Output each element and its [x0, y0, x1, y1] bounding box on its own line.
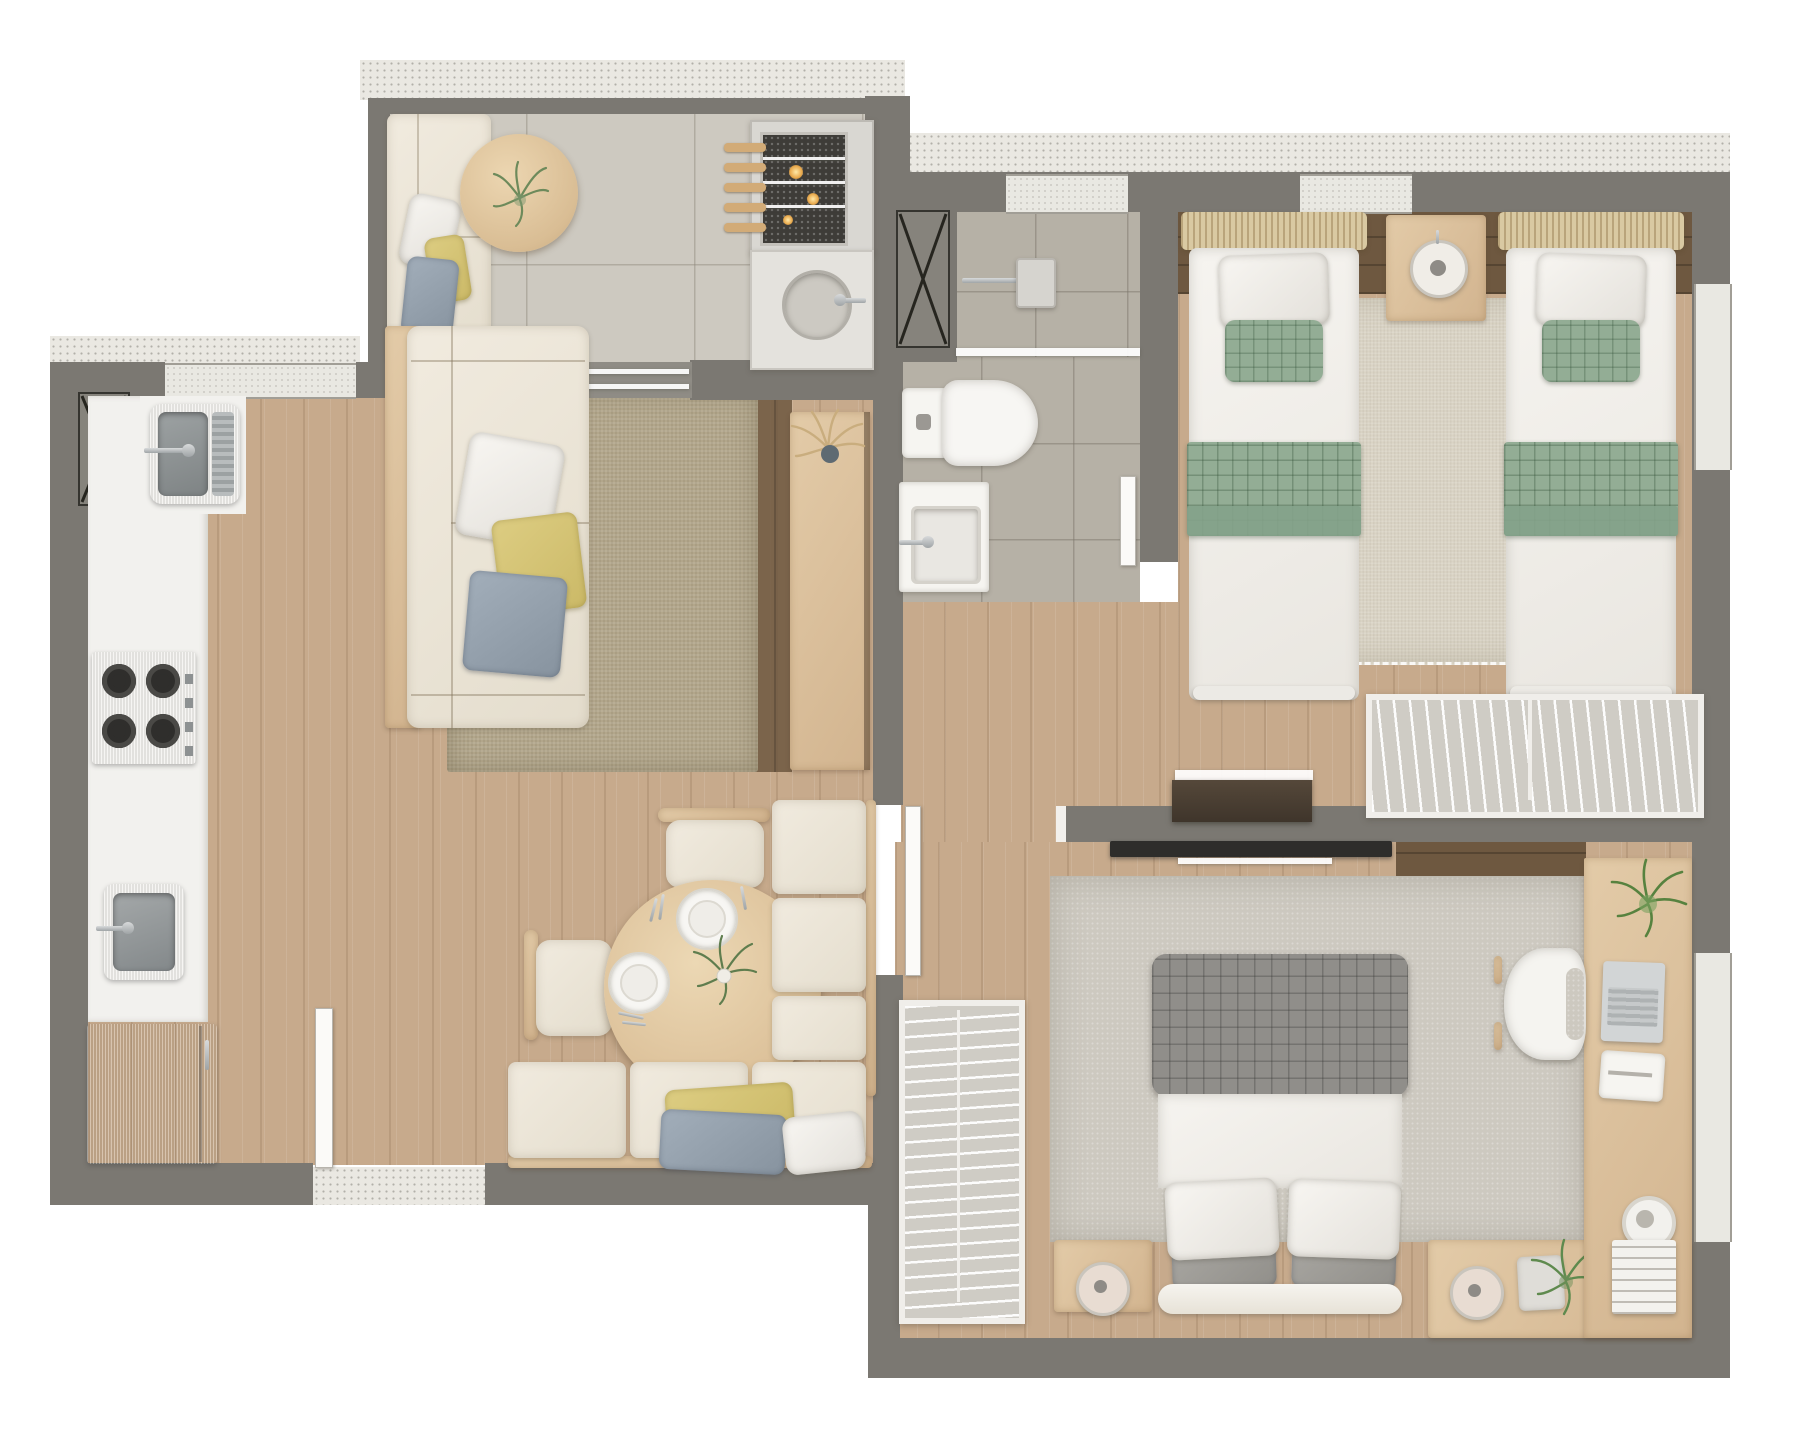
hall-door-leaf [905, 806, 921, 976]
desk-plant-icon [1602, 854, 1694, 946]
twin-bedroom-window-right [1694, 284, 1732, 470]
wall-living-bottom-left [50, 1163, 313, 1205]
refrigerator [87, 1024, 217, 1164]
burner [146, 714, 180, 748]
cooktop-knobs [185, 660, 193, 756]
magazine-spine [1608, 1070, 1652, 1077]
twin-bed1-headboard [1181, 212, 1367, 250]
twin-bed1-blanket-fold [1187, 506, 1361, 536]
banquette-cushion [508, 1062, 626, 1158]
twin-bed1-pillow [1218, 252, 1330, 328]
grill-ember [807, 193, 819, 205]
vase-mouth [1636, 1210, 1654, 1228]
banquette-cushion [772, 898, 866, 992]
master-bed-bolster [1158, 1284, 1402, 1314]
shower-glass [956, 348, 1140, 356]
plate-setting [608, 952, 670, 1014]
kitchen-faucet-base [182, 444, 195, 457]
wall-balcony-top [368, 98, 905, 114]
laptop-keyboard [1607, 987, 1658, 1027]
prep-sink-basin [113, 893, 175, 971]
grill-grate [763, 157, 845, 160]
dining-plant-icon [688, 932, 760, 1010]
desk-chair-opening [1566, 968, 1584, 1040]
desk-chair-leg [1494, 1022, 1502, 1050]
bathroom-door-leaf [1120, 476, 1136, 566]
north-block-sill [865, 133, 1730, 172]
twin-door-leaf [1175, 770, 1313, 780]
grill-skewer [724, 183, 766, 192]
book-stack [1612, 1240, 1676, 1314]
tv-shelf [1178, 858, 1332, 864]
sofa-armrest [411, 328, 585, 362]
wall-master-bottom [868, 1338, 1730, 1378]
banquette-frame [866, 800, 876, 1096]
shower-head [1016, 258, 1056, 308]
master-pillow [1164, 1177, 1280, 1261]
master-pillow [1287, 1178, 1402, 1260]
bathroom-faucet-base [922, 536, 934, 548]
master-bed-sheet [1158, 1094, 1402, 1188]
banquette-cushion [772, 996, 866, 1060]
wardrobe-divider [1528, 700, 1532, 800]
closet-rail [957, 1010, 960, 1302]
laptop [1601, 961, 1666, 1043]
twin-bedroom-window-top [1300, 174, 1412, 214]
grill-sink-faucet-base [834, 294, 846, 306]
wall-bath-twin [1140, 207, 1178, 562]
prep-sink [104, 884, 184, 980]
master-bed-quilt [1152, 954, 1408, 1096]
kitchen-window [165, 363, 356, 399]
twin-bed2-blanket-fold [1504, 506, 1678, 536]
grill-skewer [724, 143, 766, 152]
prep-sink-faucet-base [122, 922, 134, 934]
banquette-pillow-white [781, 1110, 867, 1176]
sofa-backrest [407, 326, 453, 728]
burner [146, 664, 180, 698]
banquette-pillow-blue [659, 1109, 788, 1176]
twin-bed1-foot [1193, 686, 1355, 700]
twin-bed2-headboard [1498, 212, 1684, 250]
kitchen-sink [150, 404, 240, 504]
plate-inner [620, 964, 658, 1002]
grill-skewer [724, 223, 766, 232]
grill-ember [783, 215, 793, 225]
toilet-flush-button [916, 414, 931, 430]
burner [102, 714, 136, 748]
grill-grate [763, 181, 845, 184]
grill-skewer [724, 163, 766, 172]
bathroom-window [1006, 174, 1128, 214]
pampas-plant-icon [788, 404, 868, 480]
master-lamp-right-center [1468, 1284, 1481, 1297]
twin-lamp-stem [1436, 230, 1439, 244]
twin-open-wardrobe [1366, 694, 1704, 818]
grill-ember [789, 165, 803, 179]
master-open-closet [899, 1000, 1025, 1324]
master-lamp-left-center [1094, 1280, 1107, 1293]
shower-arm [962, 278, 1022, 283]
toilet-bowl [942, 380, 1038, 466]
sofa-pillow-blue [462, 570, 568, 678]
living-walnut-strip [754, 394, 792, 772]
wall-north-block [865, 172, 1730, 212]
banquette-cushion [772, 800, 866, 894]
refrigerator-door-seam [199, 1026, 202, 1162]
grill-grate [763, 205, 845, 208]
refrigerator-handle [205, 1040, 209, 1070]
desk-magazine [1598, 1050, 1665, 1102]
grill-skewer [724, 203, 766, 212]
twin-bed1-green-pillow [1225, 320, 1323, 382]
cooktop [92, 652, 196, 764]
balcony-top-sill [360, 60, 905, 100]
twin-media-console [1172, 780, 1312, 822]
kitchen-sink-drainboard [212, 412, 234, 496]
entry-threshold [313, 1167, 485, 1205]
twin-bed2-pillow [1535, 252, 1647, 328]
burner [102, 664, 136, 698]
dining-chair-left [536, 940, 612, 1036]
sofa-armrest [411, 694, 585, 728]
dining-chair-top [666, 820, 764, 888]
floor-plan [0, 0, 1800, 1440]
barbecue-grill [760, 132, 848, 246]
table-plant-icon [488, 158, 552, 232]
twin-bed2-green-pillow [1542, 320, 1640, 382]
master-bedroom-window-right [1694, 953, 1732, 1242]
entry-door-leaf [315, 1008, 333, 1168]
kitchen-top-sill [50, 336, 360, 364]
vent-shaft-bathroom-icon [896, 210, 950, 348]
twin-lamp-center [1430, 260, 1446, 276]
wall-master-top-cap [1056, 806, 1066, 842]
desk-chair-leg [1494, 956, 1502, 984]
bathroom-basin [911, 506, 981, 584]
tv-panel [1110, 841, 1392, 857]
